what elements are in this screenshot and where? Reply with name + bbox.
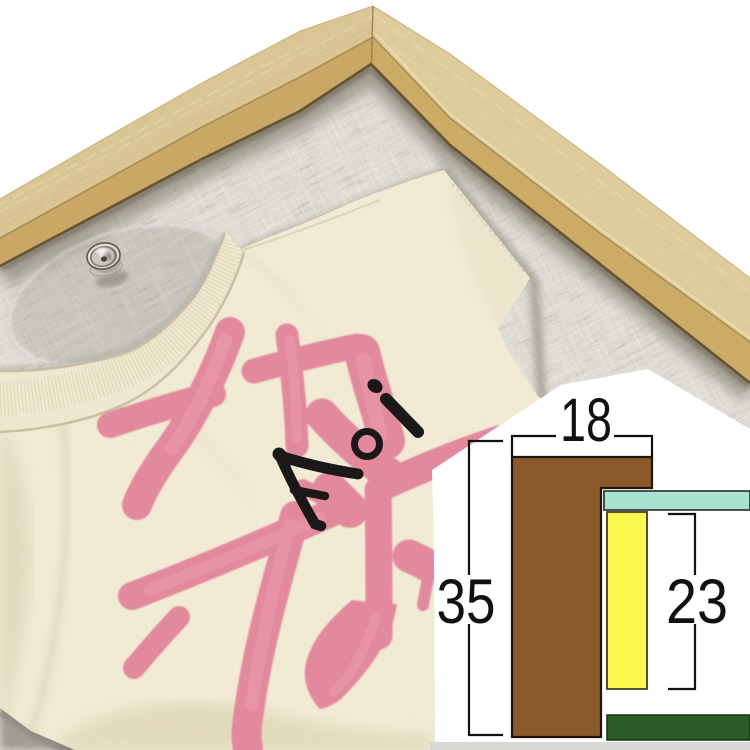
svg-text:23: 23: [666, 567, 728, 637]
svg-text:35: 35: [437, 567, 496, 637]
svg-text:18: 18: [560, 386, 612, 454]
